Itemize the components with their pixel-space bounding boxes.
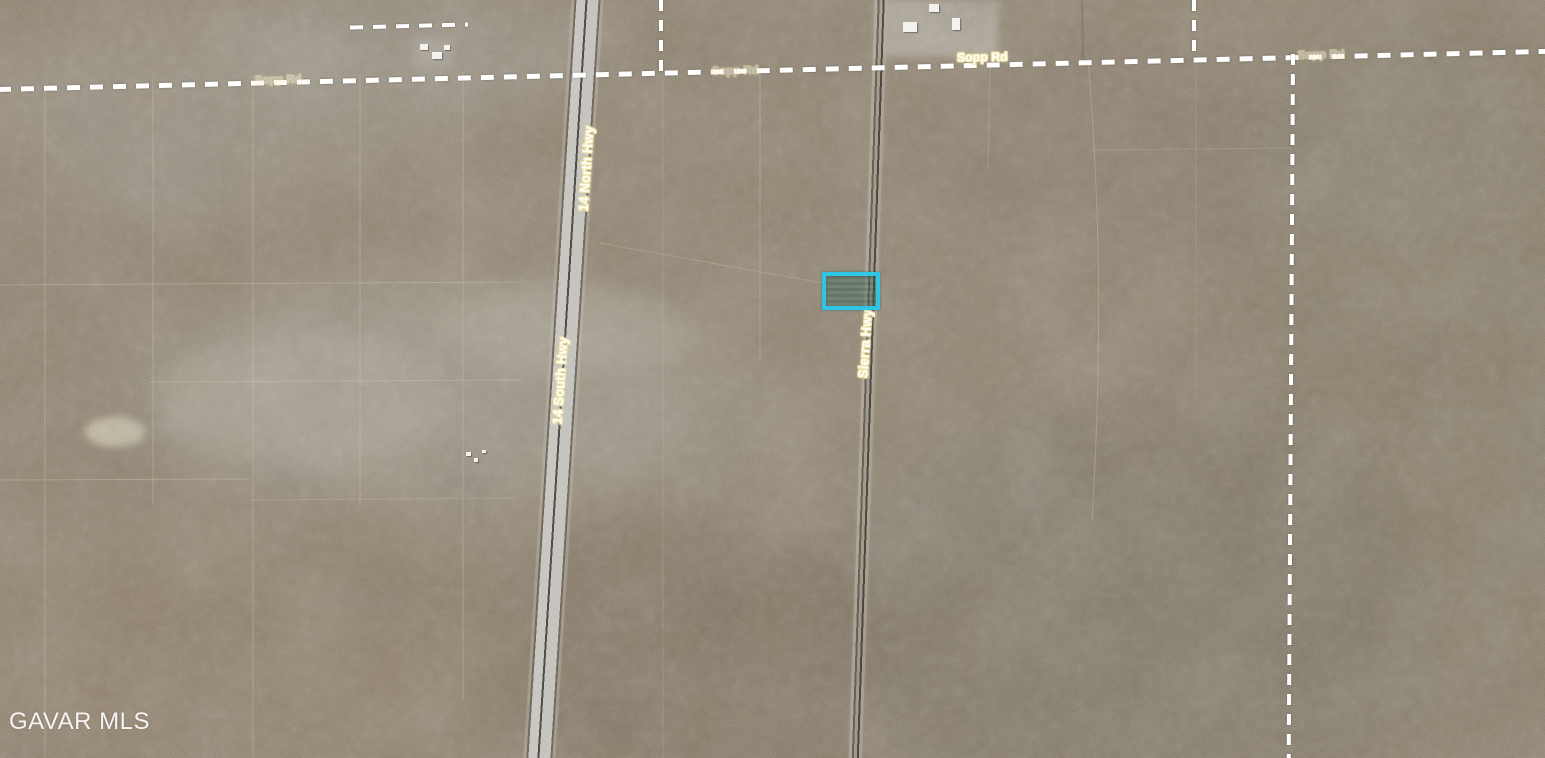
building — [432, 52, 442, 59]
building — [474, 458, 478, 462]
satellite-imagery — [0, 0, 1545, 758]
satellite-map[interactable]: Sopp Rd Sopp Rd Sopp Rd Sopp Rd 14 North… — [0, 0, 1545, 758]
building — [466, 452, 471, 456]
highlighted-parcel[interactable] — [822, 272, 880, 310]
north-dashed-road-center — [659, 0, 663, 74]
building — [952, 18, 960, 30]
sopp-rd-label: Sopp Rd — [957, 50, 1008, 65]
mls-watermark: GAVAR MLS — [9, 708, 150, 736]
terrain-grain — [0, 0, 1545, 758]
sopp-rd-label-faded-west: Sopp Rd — [255, 73, 302, 86]
north-dashed-road-right — [1192, 0, 1196, 58]
building — [444, 45, 450, 50]
building — [420, 44, 428, 50]
sopp-rd-label-faded-east: Sopp Rd — [1298, 48, 1345, 61]
building — [903, 22, 917, 32]
building — [929, 4, 939, 12]
sopp-rd-label-faded-center: Sopp Rd — [712, 64, 759, 77]
building — [482, 450, 486, 453]
